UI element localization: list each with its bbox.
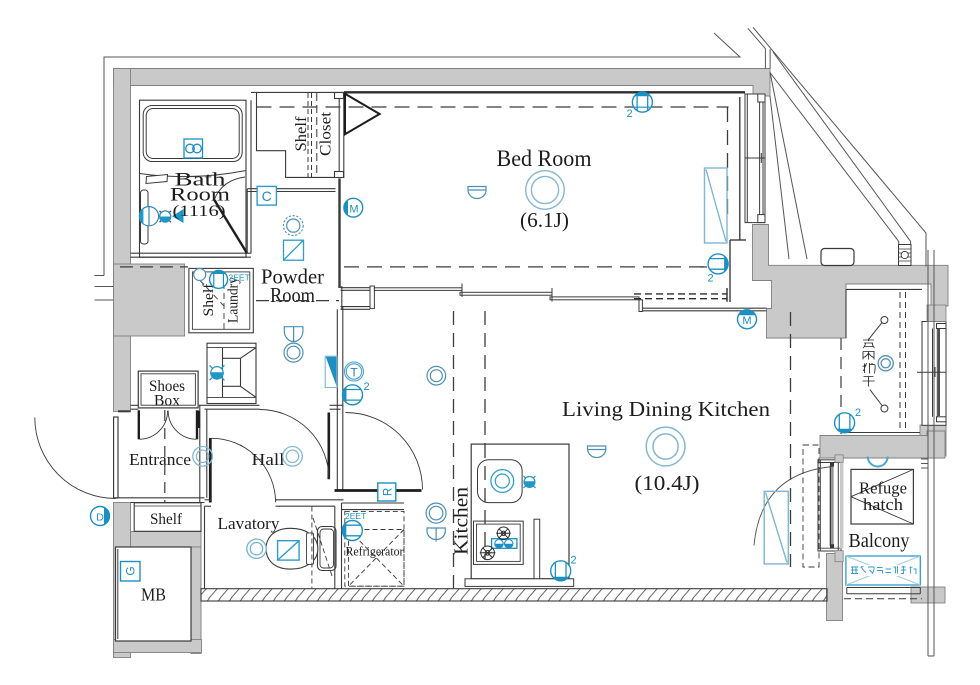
svg-text:Laundry: Laundry [226, 276, 242, 323]
svg-text:Kitchen: Kitchen [451, 487, 473, 555]
svg-text:C: C [262, 188, 272, 204]
svg-text:D: D [96, 512, 104, 524]
svg-text:Shelf: Shelf [201, 283, 217, 316]
svg-text:MB: MB [141, 585, 166, 605]
svg-text:2EET: 2EET [229, 273, 250, 283]
svg-text:Bed Room: Bed Room [497, 146, 592, 171]
svg-text:Living Dining Kitchen: Living Dining Kitchen [562, 397, 770, 421]
svg-text:Shelf: Shelf [150, 511, 183, 528]
svg-text:R: R [383, 488, 395, 496]
svg-text:Balcony: Balcony [849, 530, 910, 552]
svg-text:G: G [124, 566, 138, 575]
svg-text:(6.1J): (6.1J) [520, 208, 569, 232]
svg-text:M: M [349, 204, 358, 216]
svg-text:M: M [742, 315, 751, 327]
svg-text:Refrigerator: Refrigerator [346, 545, 405, 559]
svg-text:2: 2 [627, 108, 633, 120]
svg-text:Room: Room [270, 283, 315, 307]
svg-text:2EET: 2EET [345, 511, 366, 521]
svg-text:(1116): (1116) [173, 203, 226, 220]
svg-text:hatch: hatch [863, 495, 904, 514]
svg-text:Hall: Hall [252, 450, 285, 469]
svg-text:Closet: Closet [318, 111, 335, 156]
svg-text:Shelf: Shelf [293, 116, 310, 152]
svg-text:Box: Box [154, 393, 180, 410]
svg-text:2: 2 [708, 273, 714, 285]
svg-text:(10.4J): (10.4J) [635, 471, 700, 495]
svg-text:2: 2 [855, 407, 861, 419]
svg-text:T: T [350, 366, 358, 380]
svg-text:2: 2 [571, 555, 577, 567]
svg-text:2: 2 [364, 381, 370, 393]
svg-text:Entrance: Entrance [129, 450, 191, 469]
svg-text:Lavatory: Lavatory [218, 514, 281, 533]
